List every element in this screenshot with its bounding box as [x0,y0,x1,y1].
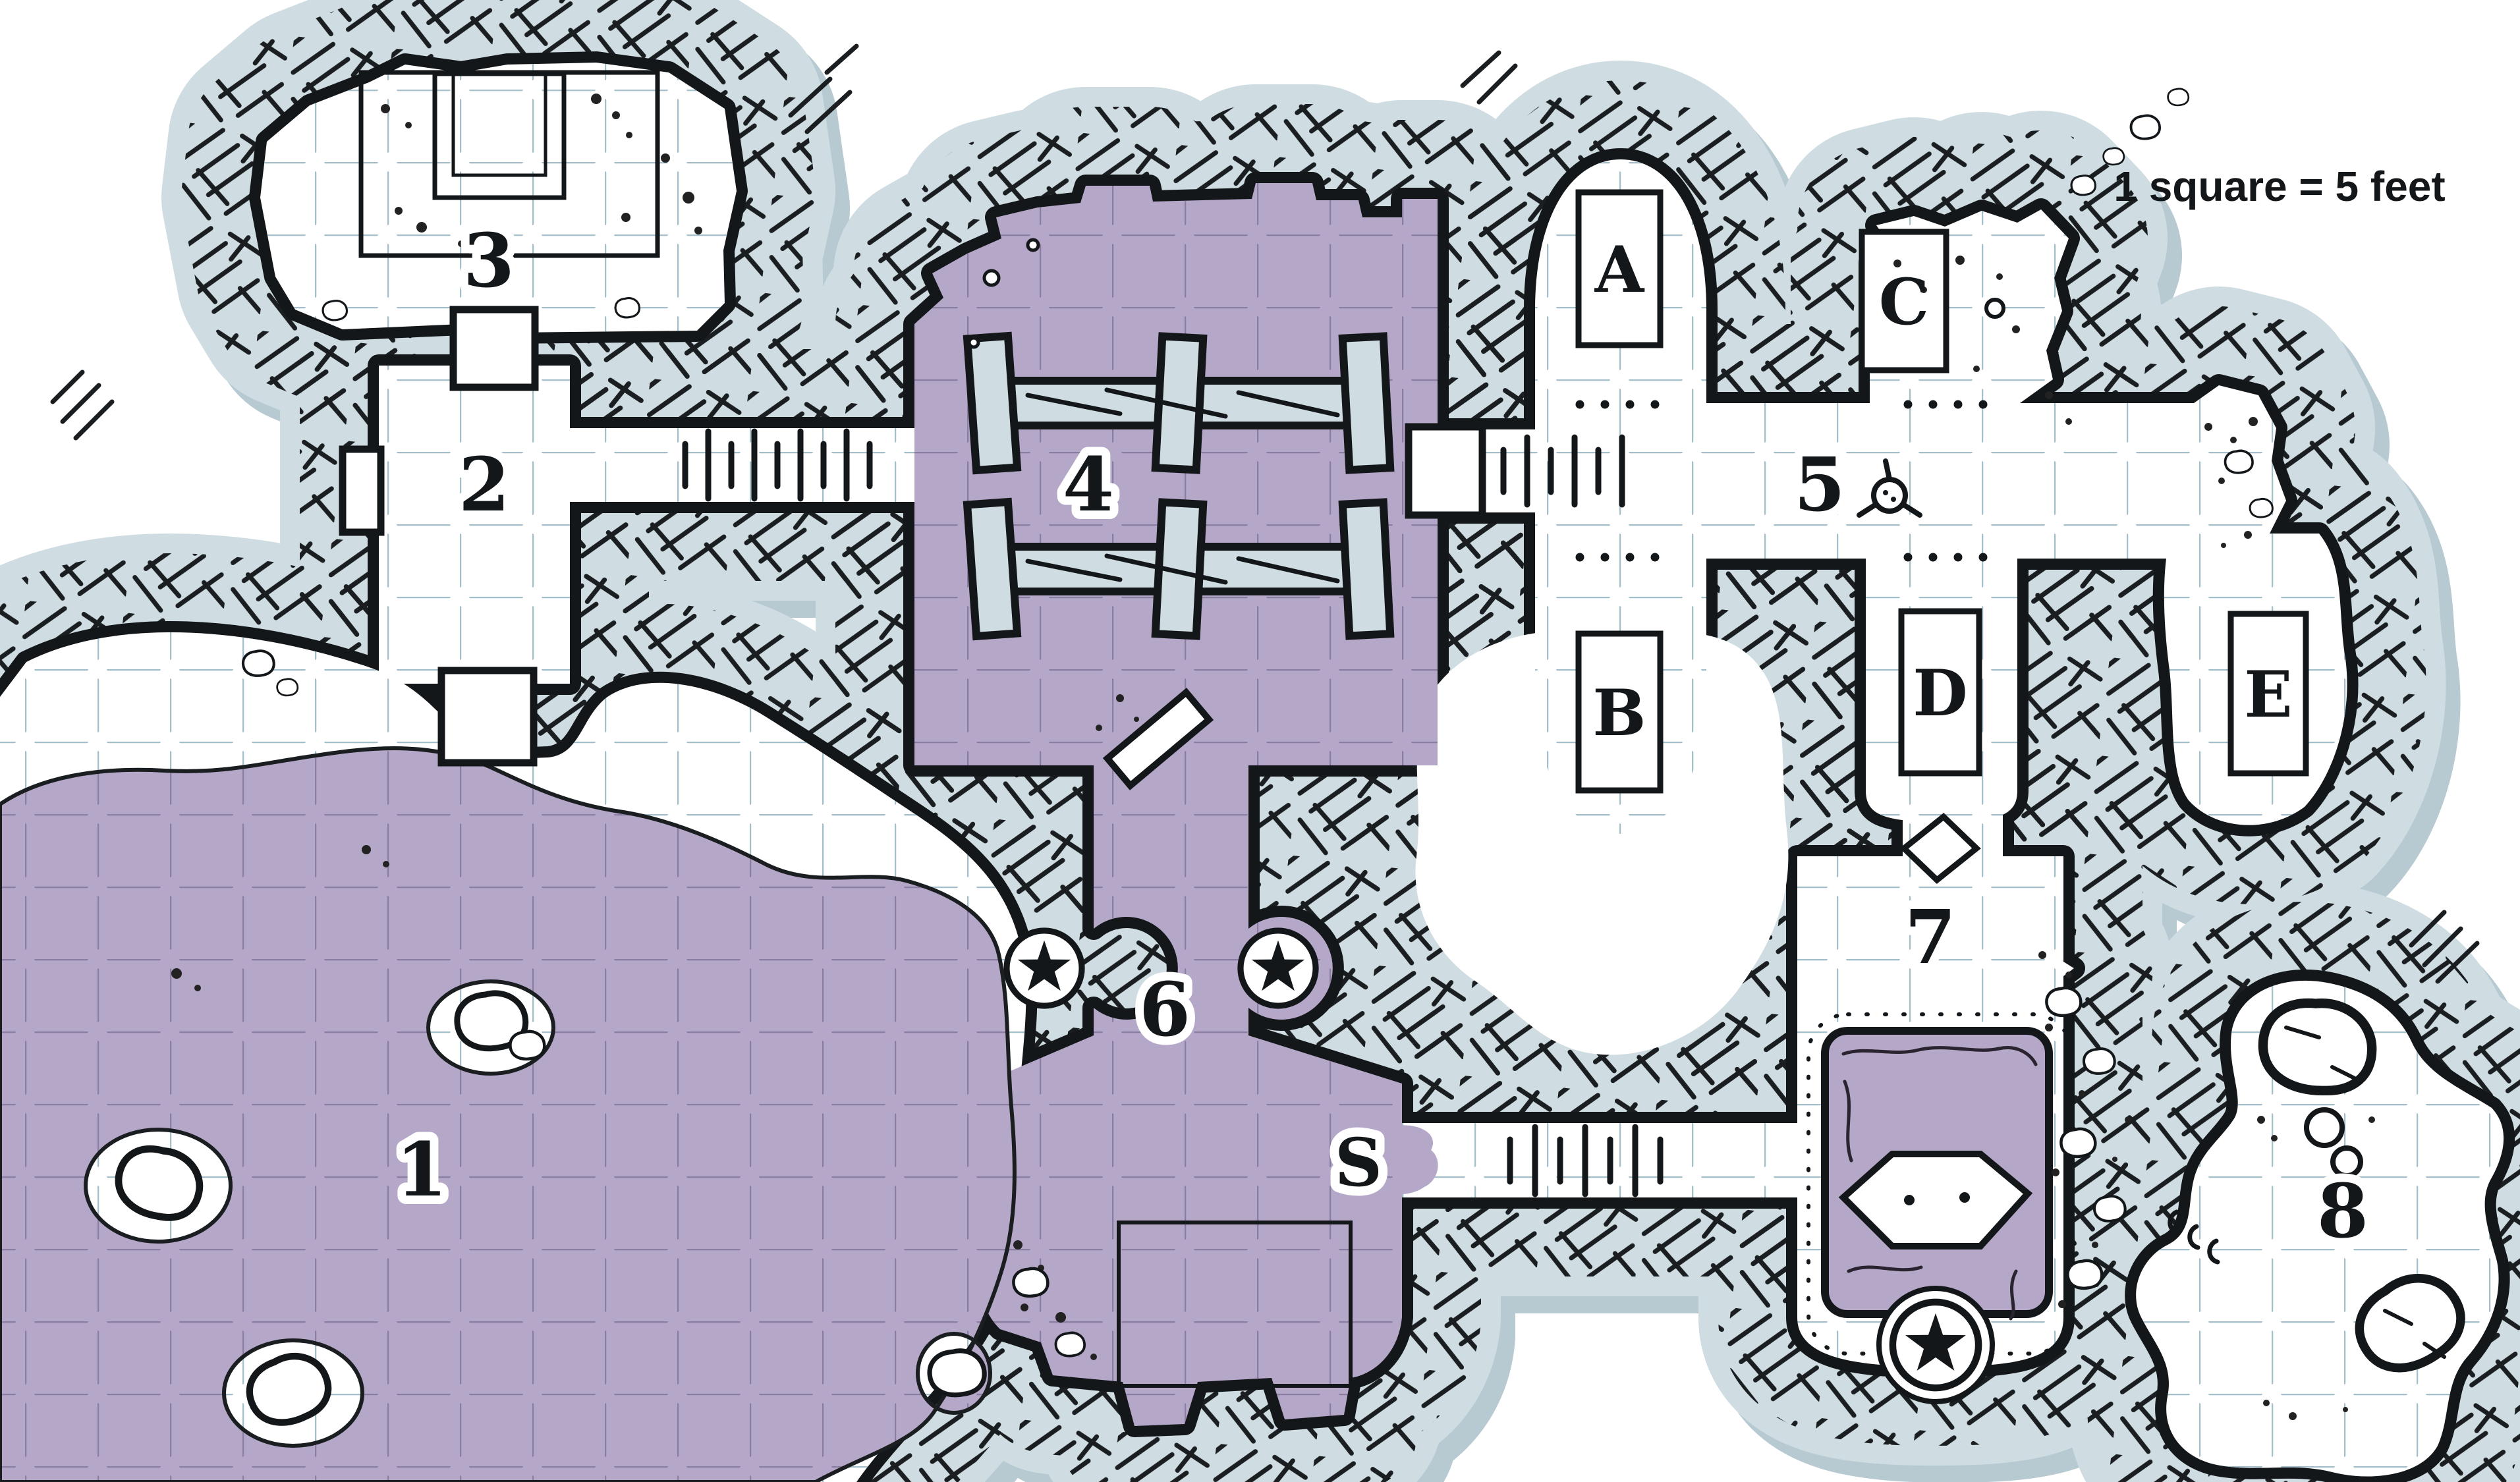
star-statue-icon [1007,931,1082,1006]
star-statue-icon [1241,931,1316,1006]
boulder [243,651,274,676]
alcove-label-b: B [1592,676,1646,750]
boulder [1013,1269,1048,1296]
boulder [323,301,347,320]
boulder [510,1031,544,1059]
stairs-s-to-7-icon [1510,1127,1660,1194]
alcove-label-a: A [1594,233,1645,307]
dungeon-map: 1 2 3 4 5 6 7 8 A B C D E S 1 square = 5… [0,0,2520,1482]
boulder [277,679,298,696]
alcove-label-d: D [1913,656,1967,730]
secret-door-label: S [1335,1124,1382,1201]
room-label-1: 1 [396,1127,447,1213]
room-label-2: 2 [459,442,510,528]
room-label-6: 6 [1139,967,1190,1053]
boulder [615,298,639,317]
door-4-east-icon [1409,427,1482,515]
room-label-3: 3 [463,218,515,304]
door-2-west-icon [343,449,381,532]
door-2-to-1-icon [441,671,534,763]
alcove-label-e: E [2244,657,2292,732]
boulder [930,1351,984,1395]
boulder [1056,1332,1085,1356]
scale-legend: 1 square = 5 feet [2114,163,2445,210]
pool [2307,1110,2342,1145]
room-label-4: 4 [1063,442,1114,528]
room-label-7: 7 [1905,894,1956,981]
room-label-5: 5 [1794,442,1845,528]
door-3-to-2-icon [453,310,535,387]
star-statue-icon [1893,1302,1978,1388]
alcove-label-c: C [1879,265,1929,339]
room-label-8: 8 [2317,1168,2368,1255]
